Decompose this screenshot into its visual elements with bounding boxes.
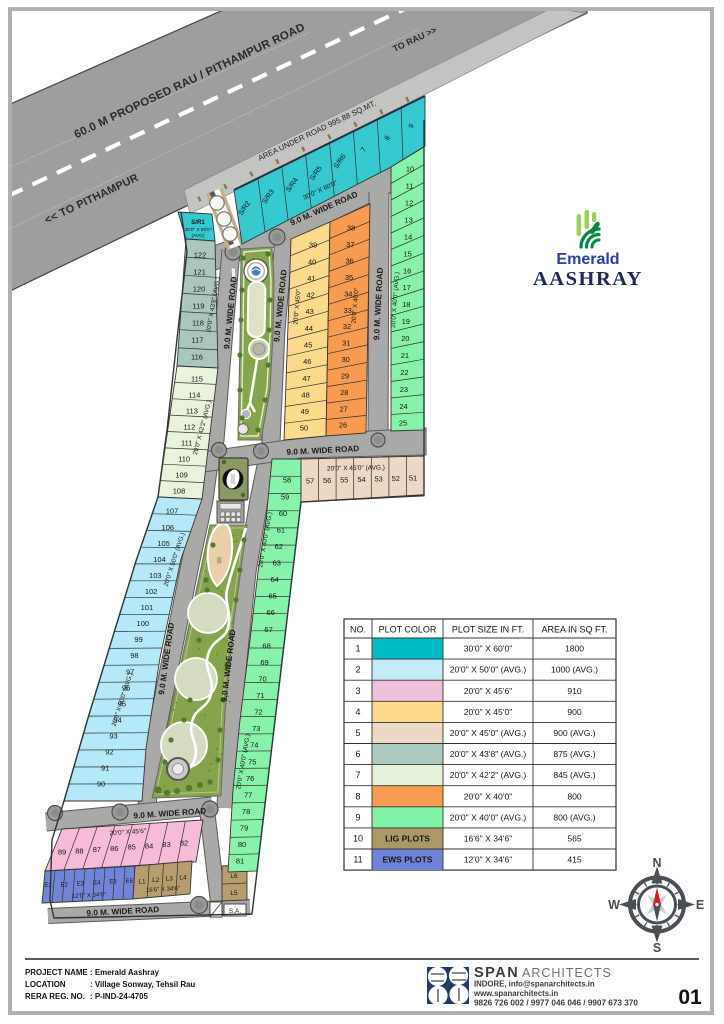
svg-text:77: 77 <box>244 790 252 799</box>
svg-text:55: 55 <box>340 476 348 485</box>
svg-text:L6: L6 <box>230 873 238 880</box>
svg-text:12'0" X 34'6": 12'0" X 34'6" <box>464 855 513 865</box>
svg-text:56: 56 <box>323 476 331 485</box>
svg-text:W: W <box>608 898 620 912</box>
svg-text:900: 900 <box>567 707 582 717</box>
svg-text:12: 12 <box>405 199 413 208</box>
svg-text:LIG PLOTS: LIG PLOTS <box>385 834 430 844</box>
svg-text:S/R1: S/R1 <box>191 219 205 226</box>
svg-text:105: 105 <box>157 539 170 548</box>
svg-text:31: 31 <box>342 339 350 348</box>
svg-text:112: 112 <box>183 423 195 432</box>
svg-text:L2: L2 <box>152 877 160 884</box>
svg-text:25: 25 <box>399 419 407 428</box>
svg-text:72: 72 <box>254 708 262 717</box>
svg-text:39: 39 <box>309 241 317 250</box>
svg-text:Emerald: Emerald <box>556 251 619 268</box>
svg-text:20'0" X 43'8" (AVG.): 20'0" X 43'8" (AVG.) <box>450 749 527 759</box>
svg-text:30'0" X 60'0": 30'0" X 60'0" <box>184 227 211 233</box>
svg-text:106: 106 <box>162 523 175 532</box>
svg-text:110: 110 <box>178 455 190 464</box>
svg-text:75: 75 <box>248 757 256 766</box>
svg-text:: P-IND-24-4705: : P-IND-24-4705 <box>90 992 148 1001</box>
svg-text:NO.: NO. <box>350 625 366 635</box>
svg-text:5: 5 <box>355 728 360 738</box>
svg-text:28: 28 <box>340 388 348 397</box>
svg-text:41: 41 <box>307 274 315 283</box>
svg-text:35: 35 <box>345 273 353 282</box>
svg-text:6: 6 <box>355 749 360 759</box>
svg-text:85: 85 <box>128 843 136 852</box>
svg-text:44: 44 <box>305 324 313 333</box>
svg-text:98: 98 <box>130 651 138 660</box>
svg-text:E4: E4 <box>93 881 101 887</box>
svg-text:24: 24 <box>399 402 407 411</box>
svg-text:415: 415 <box>567 855 582 865</box>
svg-text:82: 82 <box>180 839 188 848</box>
svg-text:E6: E6 <box>126 879 134 885</box>
svg-text:L3: L3 <box>166 876 174 883</box>
svg-text:92: 92 <box>105 748 113 757</box>
svg-text:L4: L4 <box>179 874 187 881</box>
svg-text:1000 (AVG.): 1000 (AVG.) <box>551 665 598 675</box>
svg-text:109: 109 <box>175 471 188 480</box>
svg-text:21: 21 <box>401 351 409 360</box>
svg-text:68: 68 <box>262 641 270 650</box>
svg-text:PLOT SIZE IN FT.: PLOT SIZE IN FT. <box>452 625 524 635</box>
svg-text:20'0" X 45'0" (AVG.): 20'0" X 45'0" (AVG.) <box>450 728 527 738</box>
svg-text:119: 119 <box>193 302 205 311</box>
svg-text:20'0" X 45'6": 20'0" X 45'6" <box>464 686 513 696</box>
svg-text:64: 64 <box>271 575 279 584</box>
svg-text:76: 76 <box>246 774 254 783</box>
svg-text:104: 104 <box>153 555 166 564</box>
svg-text:62: 62 <box>275 542 283 551</box>
svg-text:52: 52 <box>392 474 400 483</box>
svg-text:74: 74 <box>250 741 258 750</box>
svg-text:N: N <box>652 856 661 870</box>
svg-text:84: 84 <box>145 841 153 850</box>
svg-text:9: 9 <box>355 812 360 822</box>
svg-text:26: 26 <box>339 421 347 430</box>
svg-text:2: 2 <box>355 665 360 675</box>
svg-text:18: 18 <box>402 300 410 309</box>
svg-text:115: 115 <box>191 375 203 384</box>
svg-text:111: 111 <box>181 439 192 448</box>
svg-text:113: 113 <box>186 407 198 416</box>
svg-text:ARCHITECTS: ARCHITECTS <box>522 966 612 980</box>
svg-text:(AVG): (AVG) <box>192 233 205 239</box>
svg-text:59: 59 <box>281 492 289 501</box>
svg-text:17: 17 <box>403 283 411 292</box>
svg-text:: Village Sonway, Tehsil Rau: : Village Sonway, Tehsil Rau <box>90 980 195 989</box>
svg-text:20'0" X 45'0" (AVG.): 20'0" X 45'0" (AVG.) <box>327 464 385 472</box>
svg-text:L5: L5 <box>230 890 238 897</box>
svg-text:121: 121 <box>193 268 206 277</box>
svg-text:47: 47 <box>302 374 310 383</box>
svg-text:120: 120 <box>193 285 206 294</box>
svg-text:11: 11 <box>353 855 362 865</box>
svg-text:42: 42 <box>306 291 314 300</box>
svg-text:116: 116 <box>191 353 203 362</box>
svg-text:30'0" X 60'0": 30'0" X 60'0" <box>464 644 513 654</box>
svg-text:14: 14 <box>404 232 412 241</box>
svg-text:7: 7 <box>355 770 360 780</box>
svg-text:117: 117 <box>192 336 204 345</box>
svg-text:15: 15 <box>404 249 412 258</box>
svg-text:9826 726 002 / 9977 046 046 /: 9826 726 002 / 9977 046 046 / 9907 673 3… <box>474 999 638 1008</box>
svg-text:79: 79 <box>240 824 248 833</box>
svg-text:E: E <box>696 898 704 912</box>
svg-text:49: 49 <box>301 407 309 416</box>
svg-text:1: 1 <box>355 644 360 654</box>
svg-text:38: 38 <box>347 224 355 233</box>
svg-text:: Emerald Aashray: : Emerald Aashray <box>90 968 160 977</box>
svg-text:71: 71 <box>256 691 264 700</box>
svg-text:565: 565 <box>567 834 582 844</box>
svg-text:87: 87 <box>93 845 101 854</box>
svg-text:102: 102 <box>145 587 158 596</box>
svg-text:99: 99 <box>134 635 142 644</box>
svg-text:800: 800 <box>567 791 582 801</box>
svg-text:www.spanarchitects.in: www.spanarchitects.in <box>473 989 558 998</box>
svg-text:10: 10 <box>406 165 414 174</box>
svg-text:54: 54 <box>357 475 365 484</box>
svg-text:91: 91 <box>101 764 109 773</box>
svg-text:46: 46 <box>303 357 311 366</box>
svg-text:3: 3 <box>355 686 360 696</box>
svg-text:51: 51 <box>409 474 417 483</box>
svg-text:70: 70 <box>258 675 266 684</box>
svg-text:910: 910 <box>567 686 582 696</box>
svg-text:30: 30 <box>342 355 350 364</box>
svg-text:57: 57 <box>306 477 314 486</box>
svg-text:90: 90 <box>97 780 105 789</box>
svg-text:40: 40 <box>308 257 316 266</box>
svg-text:11: 11 <box>406 182 414 191</box>
svg-text:LOCATION: LOCATION <box>25 980 66 989</box>
svg-text:10: 10 <box>353 834 363 844</box>
svg-text:E3: E3 <box>77 881 85 887</box>
svg-text:L1: L1 <box>138 878 146 885</box>
svg-text:101: 101 <box>141 603 154 612</box>
svg-text:AREA IN SQ FT.: AREA IN SQ FT. <box>541 625 607 635</box>
svg-text:58: 58 <box>283 476 291 485</box>
svg-text:29: 29 <box>341 371 349 380</box>
svg-text:1800: 1800 <box>565 644 584 654</box>
svg-text:93: 93 <box>109 732 117 741</box>
svg-text:100: 100 <box>137 619 150 628</box>
svg-text:20'0" X 50'0" (AVG.): 20'0" X 50'0" (AVG.) <box>450 665 527 675</box>
svg-text:34: 34 <box>344 289 352 298</box>
svg-text:37: 37 <box>346 240 354 249</box>
svg-text:43: 43 <box>306 307 314 316</box>
svg-text:16'6" X 34'6": 16'6" X 34'6" <box>464 834 513 844</box>
svg-text:20: 20 <box>401 334 409 343</box>
svg-text:20'0" X 40'0": 20'0" X 40'0" <box>464 791 513 801</box>
svg-text:53: 53 <box>375 475 383 484</box>
svg-text:88: 88 <box>75 846 83 855</box>
svg-text:01: 01 <box>678 986 702 1009</box>
svg-text:48: 48 <box>301 390 309 399</box>
svg-text:19: 19 <box>402 317 410 326</box>
svg-text:845 (AVG.): 845 (AVG.) <box>553 770 595 780</box>
svg-text:16: 16 <box>403 266 411 275</box>
svg-text:118: 118 <box>192 319 204 328</box>
svg-text:E2: E2 <box>61 882 69 888</box>
svg-text:66: 66 <box>267 608 275 617</box>
svg-text:INDORE, info@spanarchitects.in: INDORE, info@spanarchitects.in <box>474 980 595 989</box>
svg-text:S: S <box>653 941 661 955</box>
svg-text:114: 114 <box>188 391 200 400</box>
svg-text:78: 78 <box>242 807 250 816</box>
svg-text:EWS PLOTS: EWS PLOTS <box>382 855 432 865</box>
svg-text:61: 61 <box>277 525 285 534</box>
svg-text:107: 107 <box>166 507 179 516</box>
svg-text:800 (AVG.): 800 (AVG.) <box>553 812 595 822</box>
svg-text:63: 63 <box>273 559 281 568</box>
svg-text:73: 73 <box>252 724 260 733</box>
svg-text:67: 67 <box>264 625 272 634</box>
svg-text:69: 69 <box>260 658 268 667</box>
svg-text:83: 83 <box>162 840 170 849</box>
svg-text:4: 4 <box>355 707 360 717</box>
svg-text:27: 27 <box>340 404 348 413</box>
svg-text:80: 80 <box>238 840 246 849</box>
svg-text:23: 23 <box>400 385 408 394</box>
svg-text:875 (AVG.): 875 (AVG.) <box>553 749 595 759</box>
svg-text:65: 65 <box>269 592 277 601</box>
svg-text:22: 22 <box>400 368 408 377</box>
svg-text:RERA REG. NO.: RERA REG. NO. <box>25 992 85 1001</box>
svg-text:103: 103 <box>149 571 162 580</box>
svg-text:45: 45 <box>304 341 312 350</box>
svg-text:86: 86 <box>110 844 118 853</box>
svg-text:E5: E5 <box>109 880 117 886</box>
svg-text:108: 108 <box>173 487 186 496</box>
svg-text:89: 89 <box>58 848 66 857</box>
svg-text:PLOT COLOR: PLOT COLOR <box>379 625 437 635</box>
svg-text:PROJECT NAME: PROJECT NAME <box>25 968 88 977</box>
svg-text:50: 50 <box>300 424 308 433</box>
svg-text:36: 36 <box>346 257 354 266</box>
svg-text:20'0" X 45'0": 20'0" X 45'0" <box>464 707 513 717</box>
svg-text:122: 122 <box>194 251 207 260</box>
svg-text:900 (AVG.): 900 (AVG.) <box>553 728 595 738</box>
svg-text:13: 13 <box>404 216 412 225</box>
svg-text:81: 81 <box>236 857 244 866</box>
svg-text:60: 60 <box>279 509 287 518</box>
svg-text:20'0" X 40'0" (AVG.): 20'0" X 40'0" (AVG.) <box>450 812 527 822</box>
svg-text:20'0" X 42'2" (AVG.): 20'0" X 42'2" (AVG.) <box>450 770 527 780</box>
svg-text:AASHRAY: AASHRAY <box>533 268 643 290</box>
svg-text:8: 8 <box>355 791 360 801</box>
